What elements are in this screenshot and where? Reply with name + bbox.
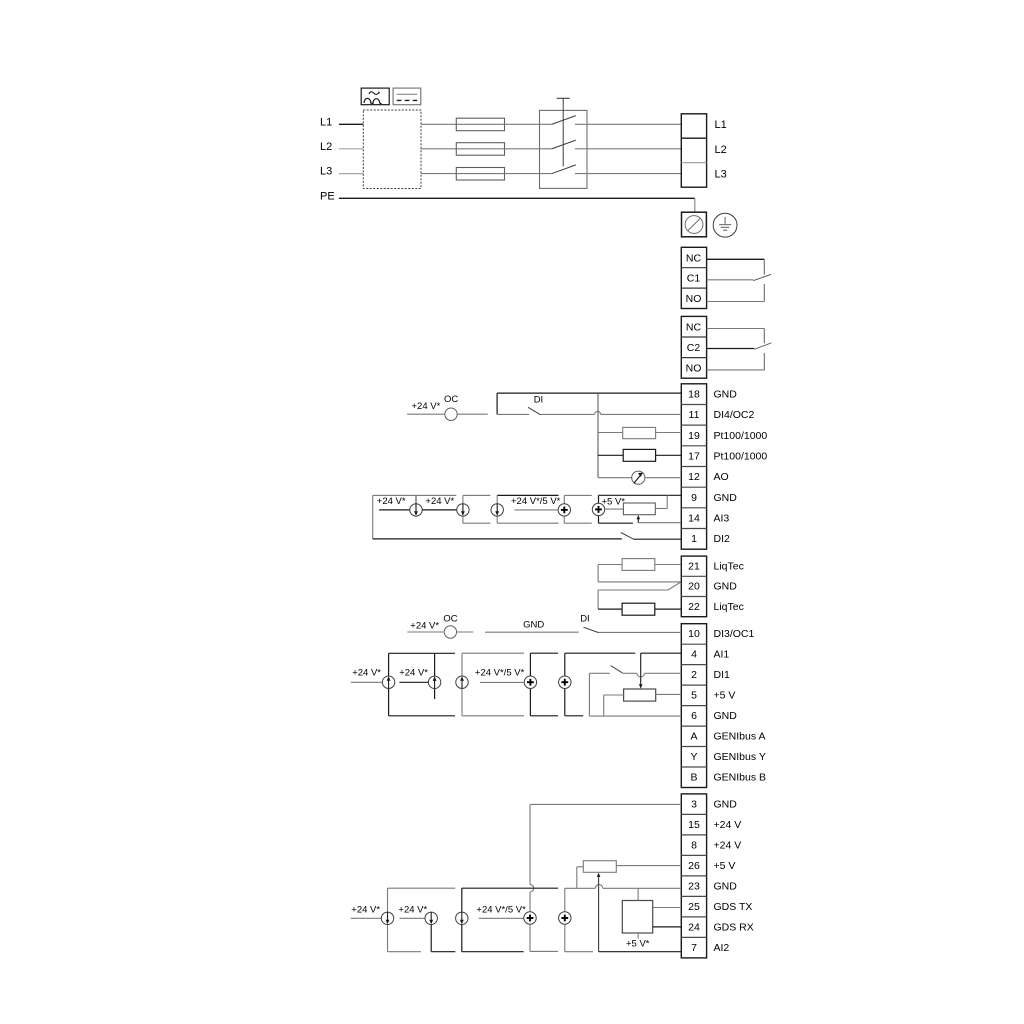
svg-text:Pt100/1000: Pt100/1000: [714, 451, 768, 463]
svg-text:AI2: AI2: [714, 942, 730, 954]
svg-text:18: 18: [688, 389, 700, 401]
svg-text:C1: C1: [687, 273, 701, 285]
svg-text:GND: GND: [714, 492, 738, 504]
svg-text:DI: DI: [580, 614, 590, 625]
svg-text:DI1: DI1: [714, 669, 731, 681]
svg-text:+24 V*: +24 V*: [412, 401, 441, 412]
svg-text:14: 14: [688, 513, 700, 525]
svg-text:AI1: AI1: [714, 649, 730, 661]
svg-text:AO: AO: [714, 471, 729, 483]
svg-text:OC: OC: [443, 614, 457, 625]
svg-text:6: 6: [691, 710, 697, 722]
svg-text:25: 25: [688, 901, 700, 913]
svg-text:+24 V*: +24 V*: [377, 496, 406, 507]
svg-text:+5 V: +5 V: [714, 860, 736, 872]
svg-text:GND: GND: [523, 619, 544, 630]
svg-text:+24 V*: +24 V*: [425, 496, 454, 507]
svg-text:23: 23: [688, 881, 700, 893]
svg-text:+24 V*: +24 V*: [399, 667, 428, 678]
svg-text:NO: NO: [686, 293, 702, 305]
svg-text:DI3/OC1: DI3/OC1: [714, 628, 755, 640]
svg-text:+24 V*/5 V*: +24 V*/5 V*: [511, 496, 561, 507]
svg-text:AI3: AI3: [714, 513, 730, 525]
svg-text:8: 8: [691, 840, 697, 852]
svg-text:9: 9: [691, 492, 697, 504]
svg-text:7: 7: [691, 942, 697, 954]
svg-text:15: 15: [688, 819, 700, 831]
svg-text:GND: GND: [714, 881, 738, 893]
svg-text:12: 12: [688, 471, 700, 483]
svg-text:+24 V*/5 V*: +24 V*/5 V*: [476, 905, 526, 916]
svg-text:L2: L2: [715, 144, 727, 156]
svg-text:+24 V: +24 V: [714, 819, 742, 831]
svg-text:GND: GND: [714, 710, 738, 722]
svg-text:L3: L3: [320, 166, 332, 178]
svg-text:DI: DI: [534, 395, 544, 406]
svg-text:GDS RX: GDS RX: [714, 922, 754, 934]
svg-text:+24 V*: +24 V*: [351, 905, 380, 916]
svg-text:B: B: [690, 772, 697, 784]
svg-text:GENIbus Y: GENIbus Y: [714, 751, 766, 763]
svg-text:+5 V*: +5 V*: [602, 497, 626, 508]
svg-text:OC: OC: [444, 394, 458, 405]
svg-text:11: 11: [689, 409, 700, 421]
svg-text:GND: GND: [714, 389, 738, 401]
svg-text:L3: L3: [715, 169, 727, 181]
svg-text:1: 1: [691, 533, 697, 545]
svg-text:GND: GND: [714, 799, 738, 811]
svg-text:24: 24: [688, 922, 700, 934]
svg-text:22: 22: [688, 601, 700, 613]
svg-text:NO: NO: [686, 363, 702, 375]
svg-text:C2: C2: [687, 342, 701, 354]
svg-text:21: 21: [688, 561, 700, 573]
svg-text:LiqTec: LiqTec: [714, 601, 744, 613]
svg-text:GND: GND: [714, 581, 738, 593]
svg-text:+24 V*: +24 V*: [398, 905, 427, 916]
svg-text:+24 V*: +24 V*: [352, 667, 381, 678]
svg-text:+24 V*/5 V*: +24 V*/5 V*: [475, 668, 525, 679]
svg-text:GENIbus B: GENIbus B: [714, 772, 767, 784]
svg-text:+24 V*: +24 V*: [410, 621, 439, 632]
svg-text:L1: L1: [320, 116, 332, 128]
svg-text:NC: NC: [686, 322, 702, 334]
svg-text:GDS TX: GDS TX: [714, 901, 753, 913]
svg-text:20: 20: [688, 581, 700, 593]
svg-text:4: 4: [691, 649, 697, 661]
svg-text:2: 2: [691, 669, 697, 681]
svg-text:PE: PE: [320, 190, 335, 202]
svg-text:LiqTec: LiqTec: [714, 561, 744, 573]
svg-text:10: 10: [688, 628, 700, 640]
svg-text:26: 26: [688, 860, 700, 872]
svg-text:A: A: [690, 731, 697, 743]
svg-text:L2: L2: [320, 141, 332, 153]
svg-text:NC: NC: [686, 252, 702, 264]
svg-text:+5 V: +5 V: [714, 690, 736, 702]
svg-text:17: 17: [688, 451, 700, 463]
svg-text:Pt100/1000: Pt100/1000: [714, 430, 768, 442]
svg-text:3: 3: [691, 799, 697, 811]
svg-text:5: 5: [691, 690, 697, 702]
svg-text:19: 19: [688, 430, 700, 442]
svg-text:GENIbus A: GENIbus A: [714, 731, 766, 743]
svg-text:L1: L1: [715, 119, 727, 131]
svg-text:+24 V: +24 V: [714, 840, 742, 852]
svg-text:DI2: DI2: [714, 533, 731, 545]
svg-text:DI4/OC2: DI4/OC2: [714, 409, 755, 421]
svg-text:+5 V*: +5 V*: [626, 939, 650, 950]
svg-text:Y: Y: [690, 751, 697, 763]
